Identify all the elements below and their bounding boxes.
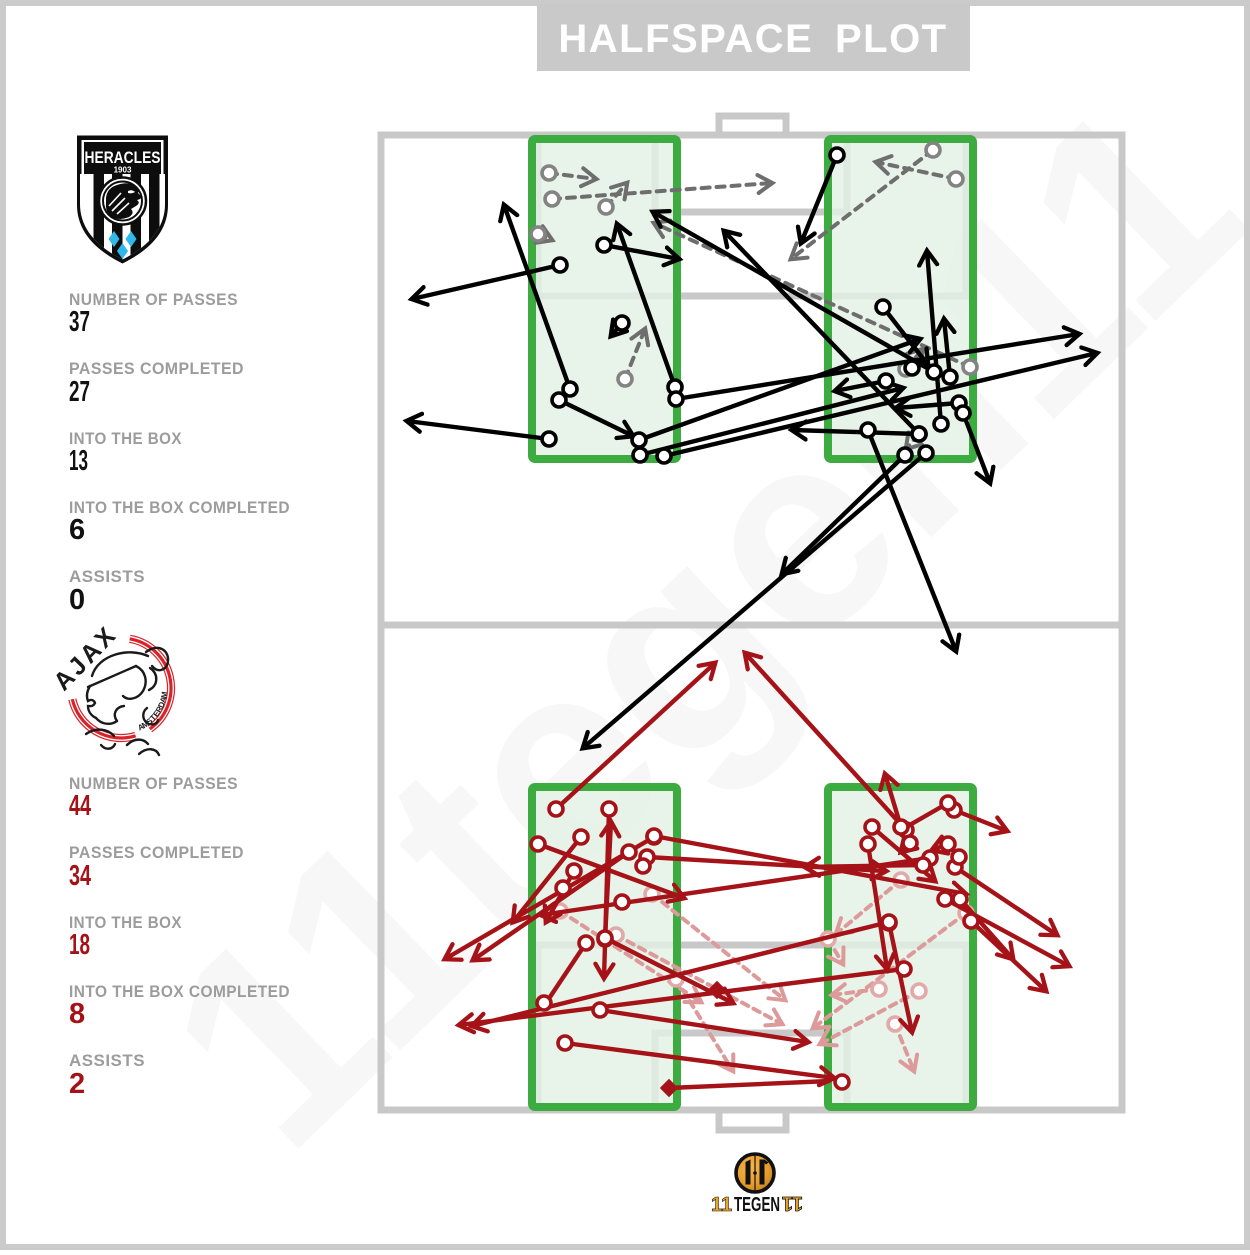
svg-text:18: 18 [69,929,90,961]
svg-text:11: 11 [711,1194,732,1216]
svg-text:1903: 1903 [114,166,132,175]
svg-text:0: 0 [69,584,85,616]
svg-text:44: 44 [69,790,91,822]
svg-text:HALFSPACE PLOT: HALFSPACE PLOT [558,17,947,61]
svg-text:PASSES COMPLETED: PASSES COMPLETED [69,359,244,378]
svg-text:11: 11 [782,1192,803,1214]
svg-text:37: 37 [69,306,90,338]
svg-text:INTO THE BOX COMPLETED: INTO THE BOX COMPLETED [69,498,290,517]
svg-text:27: 27 [69,376,90,408]
svg-text:NUMBER OF PASSES: NUMBER OF PASSES [69,290,238,309]
svg-text:NUMBER OF PASSES: NUMBER OF PASSES [69,774,238,793]
svg-text:TEGEN: TEGEN [734,1194,780,1216]
svg-text:13: 13 [69,445,88,477]
svg-text:PASSES COMPLETED: PASSES COMPLETED [69,843,244,862]
svg-text:6: 6 [69,514,85,546]
svg-text:8: 8 [69,998,85,1030]
svg-text:2: 2 [69,1068,85,1100]
svg-text:34: 34 [69,860,91,892]
svg-text:HERACLES: HERACLES [85,149,161,167]
svg-text:INTO THE BOX COMPLETED: INTO THE BOX COMPLETED [69,982,290,1001]
